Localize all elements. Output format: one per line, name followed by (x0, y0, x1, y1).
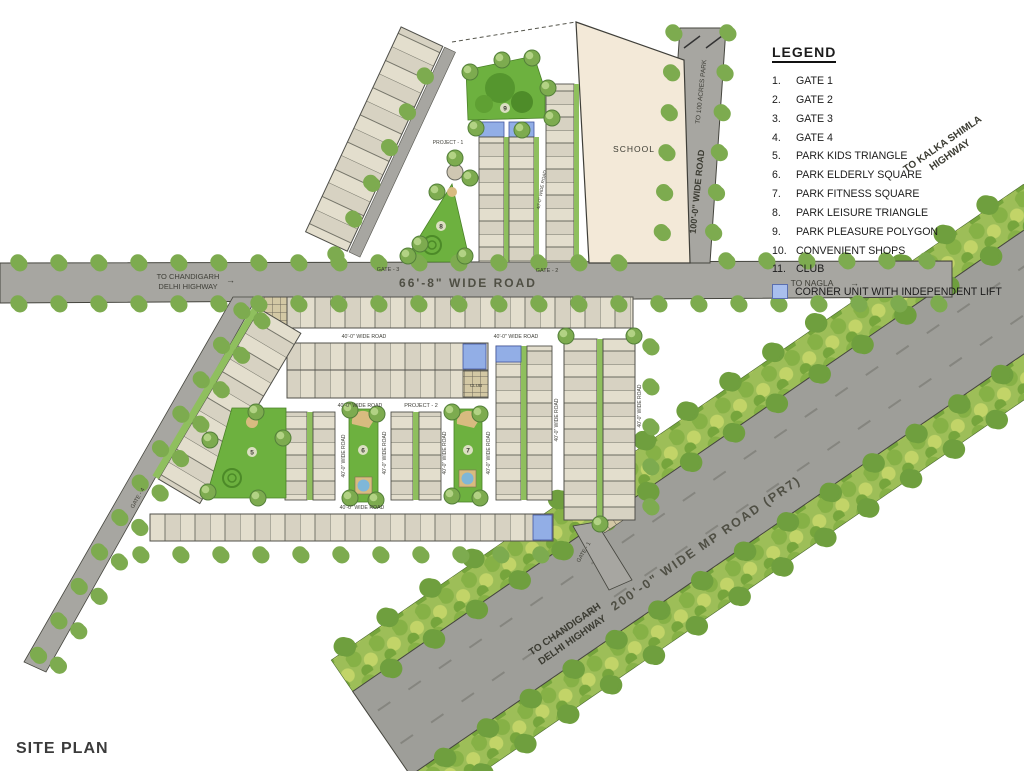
legend-item: 3.GATE 3 (772, 110, 1018, 129)
legend: LEGEND 1.GATE 1 2.GATE 2 3.GATE 3 4.GATE… (772, 44, 1018, 299)
internal-road-label: 40'-0" WIDE ROAD (494, 334, 539, 340)
legend-item: 2.GATE 2 (772, 91, 1018, 110)
project1-label: PROJECT - 1 (433, 140, 464, 146)
park8-number: 8 (439, 224, 443, 231)
internal-road-label: 40'-0" WIDE ROAD (382, 431, 388, 474)
site-plan-canvas: 200'-0" WIDE MP ROAD (PR7) TO KALKA SHIM… (0, 0, 1024, 771)
school-plot (576, 22, 690, 263)
legend-item: 11.CLUB (772, 260, 1018, 279)
legend-item: 4.GATE 4 (772, 129, 1018, 148)
main-road-label: 66'-8" WIDE ROAD (399, 276, 537, 290)
internal-road-label: 40'-0" WIDE ROAD (637, 384, 643, 427)
boundary-line (452, 22, 576, 42)
legend-heading: LEGEND (772, 44, 836, 63)
legend-item: 5.PARK KIDS TRIANGLE (772, 147, 1018, 166)
to-chandigarh-top-line1: TO CHANDIGARH (157, 272, 220, 281)
corner-unit-blue (463, 344, 486, 369)
corner-unit-blue (533, 515, 552, 540)
legend-item: 9.PARK PLEASURE POLYGON (772, 223, 1018, 242)
legend-item: 6.PARK ELDERLY SQUARE (772, 166, 1018, 185)
internal-road-label: 40'-0" WIDE ROAD (554, 398, 560, 441)
legend-corner-note: CORNER UNIT WITH INDEPENDENT LIFT (772, 284, 1018, 299)
park-fitness-square: 7 (454, 409, 482, 502)
legend-item: 7.PARK FITNESS SQUARE (772, 185, 1018, 204)
legend-item: 8.PARK LEISURE TRIANGLE (772, 204, 1018, 223)
park5-number: 5 (250, 450, 254, 457)
internal-road-label: 40'-0" WIDE ROAD (442, 431, 448, 474)
legend-item: 1.GATE 1 (772, 72, 1018, 91)
legend-item: 10.CONVENIENT SHOPS (772, 242, 1018, 261)
corner-unit-blue (496, 346, 521, 362)
school-label: SCHOOL (613, 144, 655, 154)
internal-road-label: 40'-0" WIDE ROAD (341, 434, 347, 477)
project2-label: PROJECT - 2 (404, 403, 438, 409)
park9-number: 9 (503, 106, 507, 113)
to-chandigarh-arrow: → (226, 275, 235, 285)
internal-road-label: 40'-0" WIDE ROAD (340, 505, 385, 511)
gate2-label: GATE - 2 (536, 268, 559, 274)
internal-road-label: 40'-0" WIDE ROAD (338, 403, 383, 409)
internal-road-label: 40'-0" WIDE ROAD (342, 334, 387, 340)
to-chandigarh-top-line2: DELHI HIGHWAY (158, 282, 217, 291)
internal-road-label: 40'-0" WIDE ROAD (486, 431, 492, 474)
club-label: CLUB (470, 383, 482, 388)
corner-unit-swatch (772, 284, 788, 299)
park7-number: 7 (466, 448, 470, 455)
park-elderly-square: 6 (349, 409, 378, 502)
gate3-label: GATE - 3 (377, 267, 400, 273)
page-title: SITE PLAN (16, 740, 109, 758)
park6-number: 6 (361, 448, 365, 455)
